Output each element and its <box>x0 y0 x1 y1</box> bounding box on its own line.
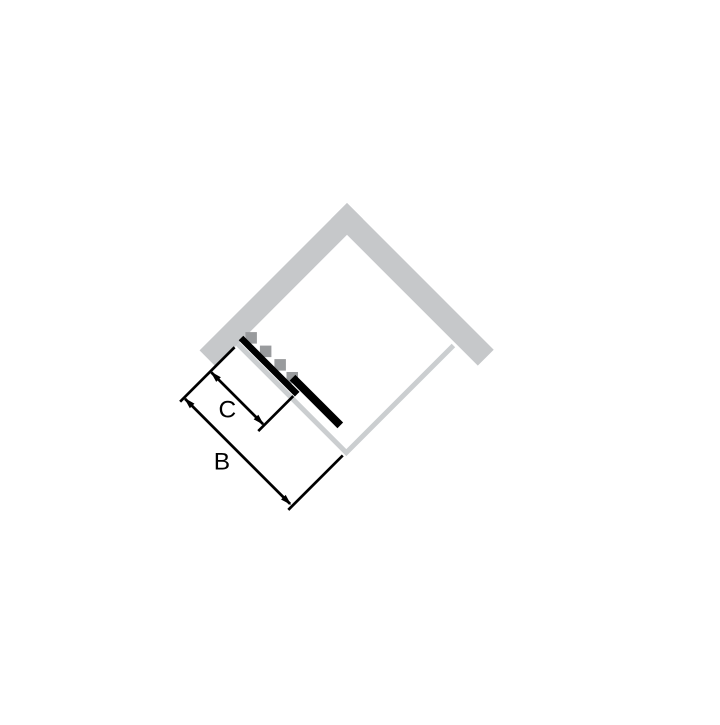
svg-text:B: B <box>214 449 230 476</box>
svg-text:C: C <box>219 397 237 424</box>
